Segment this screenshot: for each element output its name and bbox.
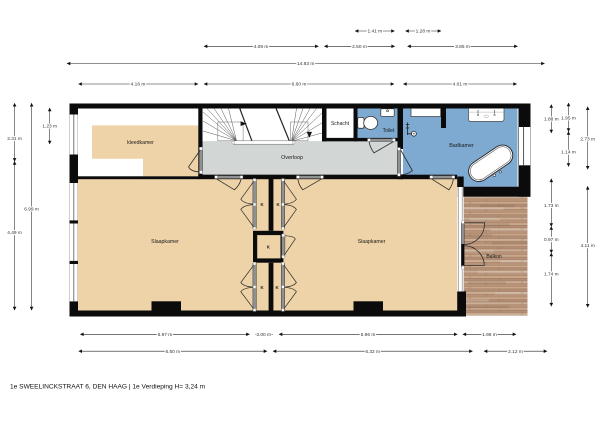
svg-text:4.11 m: 4.11 m (581, 243, 595, 249)
svg-text:4.49 m: 4.49 m (7, 230, 22, 236)
svg-text:4.01 m: 4.01 m (453, 82, 468, 88)
svg-text:4.16 m: 4.16 m (131, 82, 146, 88)
svg-text:1e SWEELINCKSTRAAT 6, DEN HAAG: 1e SWEELINCKSTRAAT 6, DEN HAAG | 1e Verd… (10, 384, 206, 391)
svg-text:2.50 m: 2.50 m (352, 44, 367, 50)
svg-text:2.12 m: 2.12 m (508, 349, 523, 355)
svg-text:3.00 m: 3.00 m (256, 332, 271, 338)
svg-text:1.73 m: 1.73 m (544, 203, 559, 209)
svg-text:6.60 m: 6.60 m (292, 82, 307, 88)
svg-text:3.85 m: 3.85 m (455, 44, 470, 50)
svg-text:5.96 m: 5.96 m (361, 332, 376, 338)
svg-text:1.88 m: 1.88 m (544, 117, 559, 123)
svg-text:1.14 m: 1.14 m (561, 149, 576, 155)
svg-text:4.08 m: 4.08 m (254, 44, 269, 50)
svg-text:1.28 m: 1.28 m (416, 29, 431, 35)
svg-text:1.96 m: 1.96 m (482, 332, 497, 338)
svg-text:1.95 m: 1.95 m (561, 116, 576, 122)
svg-text:1.74 m: 1.74 m (544, 272, 559, 278)
svg-text:Badkamer: Badkamer (449, 143, 474, 149)
svg-text:Toilet: Toilet (383, 128, 395, 134)
svg-text:0.97 m: 0.97 m (544, 237, 559, 243)
svg-text:2.31 m: 2.31 m (7, 136, 22, 142)
svg-text:Overloop: Overloop (281, 155, 303, 161)
svg-text:14.83 m: 14.83 m (297, 61, 314, 67)
svg-text:2.73 m: 2.73 m (580, 137, 595, 143)
svg-text:6.50 m: 6.50 m (165, 349, 180, 355)
svg-text:kleedkamer: kleedkamer (127, 140, 154, 146)
svg-text:6.32 m: 6.32 m (365, 349, 380, 355)
svg-text:1.41 m: 1.41 m (367, 29, 382, 35)
svg-text:Schacht: Schacht (331, 121, 350, 127)
svg-text:6.99 m: 6.99 m (24, 207, 39, 213)
svg-text:Balkon: Balkon (486, 254, 502, 260)
svg-text:Slaapkamer: Slaapkamer (358, 239, 386, 245)
svg-text:1.23 m: 1.23 m (42, 124, 57, 130)
svg-text:Slaapkamer: Slaapkamer (151, 239, 179, 245)
svg-text:5.97 m: 5.97 m (158, 332, 173, 338)
